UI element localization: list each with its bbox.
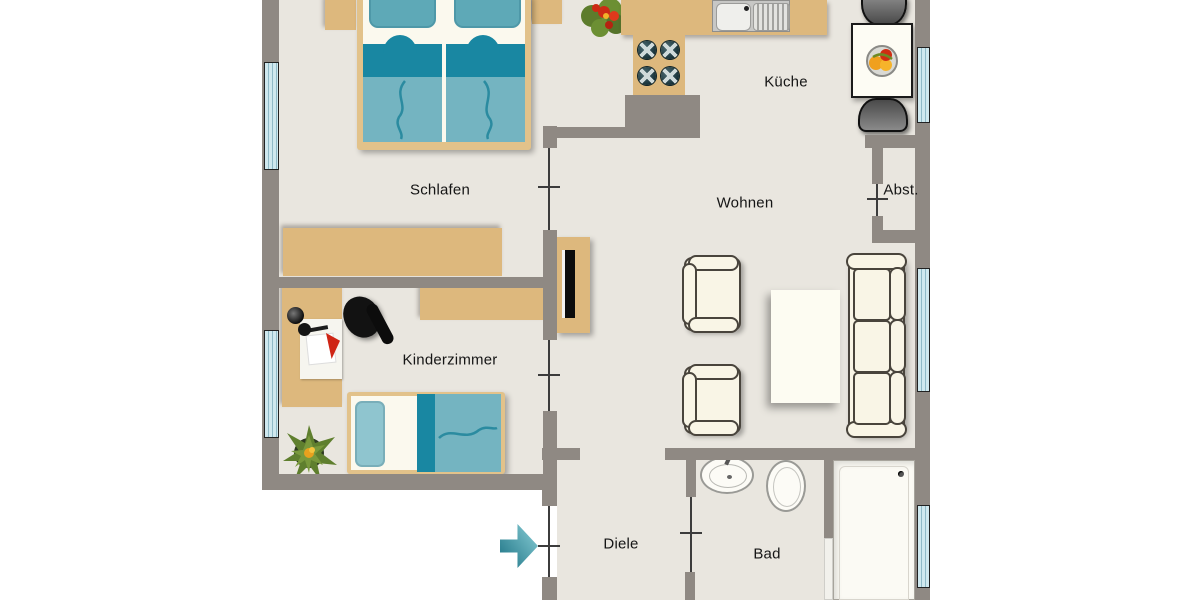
entrance-arrow-icon [500, 521, 538, 571]
wall-segment [543, 411, 557, 474]
door-tick [538, 186, 560, 188]
stove-cabinet [633, 35, 685, 95]
pillow [355, 401, 385, 467]
pillow [369, 0, 436, 28]
wall-segment [262, 277, 545, 288]
blanket-crease [435, 394, 501, 472]
office-chair [344, 294, 392, 346]
drain-dot [898, 471, 904, 477]
wardrobe [283, 228, 502, 276]
blanket [446, 77, 525, 142]
double-bed-right-half [446, 0, 525, 142]
sofa-seat-cushion [853, 320, 891, 373]
room-label-bad: Bad [753, 546, 780, 563]
tv-sideboard [556, 237, 590, 333]
stove-burner [661, 67, 679, 85]
door-tick [538, 374, 560, 376]
coffee-table [771, 290, 840, 403]
wall-segment [872, 148, 883, 184]
room-label-diele: Diele [603, 536, 638, 553]
wall-segment [872, 230, 920, 243]
room-label-wohnen: Wohnen [717, 195, 774, 212]
door-tick [538, 545, 560, 547]
bathtub [833, 460, 915, 600]
nightstand [325, 0, 356, 30]
wall-segment [543, 230, 557, 340]
window [917, 47, 930, 123]
wall-segment [542, 448, 580, 460]
stove-burner [638, 67, 656, 85]
wall-segment [824, 460, 833, 538]
tv [562, 250, 575, 318]
wall-segment [665, 448, 915, 460]
drain-dot [727, 475, 732, 479]
window [264, 62, 279, 170]
dining-chair [858, 98, 908, 132]
single-bed-mattress [351, 396, 501, 470]
desk-lamp-icon [287, 307, 304, 324]
room-label-schlafen: Schlafen [410, 182, 470, 199]
blanket-fold [417, 394, 435, 472]
door-opening-line [548, 506, 550, 577]
blanket-crease [446, 77, 525, 142]
armchair-armrest [688, 420, 739, 436]
window [917, 505, 930, 588]
armchair-armrest [682, 263, 697, 325]
dining-table [851, 23, 913, 98]
kitchen-sink [712, 0, 790, 32]
blanket [435, 394, 501, 472]
desk-lamp-base [298, 323, 311, 336]
single-bed [347, 392, 505, 474]
sofa [848, 255, 905, 436]
desk [282, 287, 342, 407]
door-opening-line [690, 497, 692, 572]
wall-segment [557, 127, 625, 138]
pillow [454, 0, 521, 28]
wall-segment [543, 126, 557, 148]
wall-segment [685, 572, 695, 600]
sofa-seat-cushion [853, 372, 891, 425]
sink-faucet [744, 6, 749, 11]
washbasin [700, 456, 754, 494]
sink-drainer [753, 3, 790, 31]
sofa-back-cushion [889, 267, 906, 321]
blanket [363, 77, 442, 142]
sofa-back-cushion [889, 319, 906, 373]
wall-segment [542, 474, 557, 506]
floor-plan: Schlafen Küche Wohnen Abst. Kinderzimmer… [0, 0, 1200, 600]
sofa-seat-cushion [853, 268, 891, 321]
fruit-bowl-icon [865, 45, 899, 77]
blanket-fold [446, 44, 525, 77]
double-bed-left-half [363, 0, 442, 142]
door-tick [680, 532, 702, 534]
toilet-seat [773, 467, 801, 507]
blanket-crease [363, 77, 442, 142]
wall-segment [262, 474, 557, 490]
door-opening-line [876, 184, 878, 216]
wall-segment [625, 95, 700, 138]
room-label-abstellraum: Abst. [883, 182, 918, 199]
window [917, 268, 930, 392]
armchair [684, 257, 741, 331]
armchair-armrest [688, 317, 739, 333]
room-label-kinderzimmer: Kinderzimmer [403, 352, 498, 369]
stove-burner [661, 41, 679, 59]
door-opening-line [548, 148, 550, 230]
armchair [684, 366, 741, 434]
sofa-back-cushion [889, 371, 906, 425]
wall-shelf [420, 286, 545, 320]
wall-segment [686, 460, 696, 497]
bathtub-inner [839, 466, 909, 600]
window [264, 330, 279, 438]
shower-partition [824, 538, 833, 600]
double-bed-mattress [363, 0, 525, 142]
room-label-kueche: Küche [764, 74, 808, 91]
double-bed [357, 0, 531, 150]
wall-segment [865, 135, 915, 148]
wall-segment [542, 577, 557, 600]
stove-burner [638, 41, 656, 59]
toilet [766, 460, 806, 512]
blanket-fold [363, 44, 442, 77]
nightstand [532, 0, 562, 24]
